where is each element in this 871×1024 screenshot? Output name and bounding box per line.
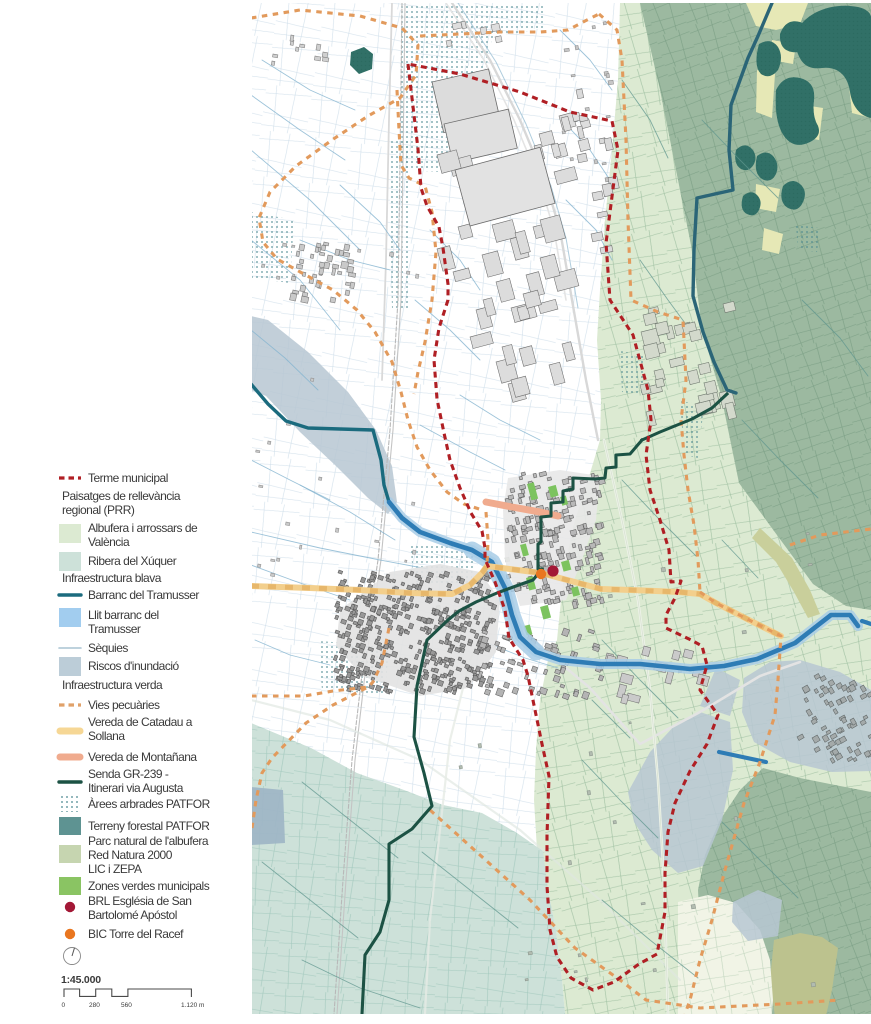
svg-text:m: m: [199, 1002, 204, 1009]
svg-text:Albufera i arrossars de: Albufera i arrossars de: [88, 521, 198, 535]
svg-text:1.120: 1.120: [181, 1002, 198, 1009]
svg-text:Paisatges de rellevància: Paisatges de rellevància: [62, 489, 181, 503]
svg-text:Riscos d'inundació: Riscos d'inundació: [88, 659, 180, 673]
svg-text:BIC Torre del Racef: BIC Torre del Racef: [88, 927, 184, 941]
svg-text:Vereda de Montañana: Vereda de Montañana: [88, 750, 197, 764]
svg-text:Tramusser: Tramusser: [88, 622, 141, 636]
svg-text:Sollana: Sollana: [88, 729, 125, 743]
svg-text:Vereda de Catadau a: Vereda de Catadau a: [88, 715, 193, 729]
svg-text:Bartolomé Apóstol: Bartolomé Apóstol: [88, 908, 177, 922]
svg-text:Barranc del Tramusser: Barranc del Tramusser: [88, 588, 199, 602]
svg-text:Parc natural de l'albufera: Parc natural de l'albufera: [88, 834, 209, 848]
svg-text:Red Natura 2000: Red Natura 2000: [88, 848, 173, 862]
svg-text:Sèquies: Sèquies: [88, 641, 128, 655]
svg-text:Terme municipal: Terme municipal: [88, 471, 168, 485]
svg-text:Àrees arbrades PATFOR: Àrees arbrades PATFOR: [88, 796, 211, 811]
svg-text:Terreny forestal PATFOR: Terreny forestal PATFOR: [88, 819, 210, 833]
svg-text:Ribera del Xúquer: Ribera del Xúquer: [88, 554, 177, 568]
svg-text:Llit barranc del: Llit barranc del: [88, 608, 159, 622]
svg-text:Itinerari via Augusta: Itinerari via Augusta: [88, 781, 184, 795]
svg-text:LIC i ZEPA: LIC i ZEPA: [88, 862, 142, 876]
svg-text:València: València: [88, 535, 130, 549]
svg-text:regional (PRR): regional (PRR): [62, 503, 135, 517]
svg-text:Infraestructura blava: Infraestructura blava: [62, 571, 162, 585]
svg-text:Vies pecuàries: Vies pecuàries: [88, 698, 160, 712]
svg-text:560: 560: [121, 1002, 132, 1009]
svg-text:Zones verdes municipals: Zones verdes municipals: [88, 879, 210, 893]
svg-text:Senda GR-239 -: Senda GR-239 -: [88, 767, 169, 781]
svg-text:BRL Església de San: BRL Església de San: [88, 894, 191, 908]
svg-text:0: 0: [62, 1002, 66, 1009]
svg-text:Infraestructura verda: Infraestructura verda: [62, 678, 163, 692]
svg-text:280: 280: [89, 1002, 100, 1009]
svg-text:1:45.000: 1:45.000: [61, 974, 101, 986]
